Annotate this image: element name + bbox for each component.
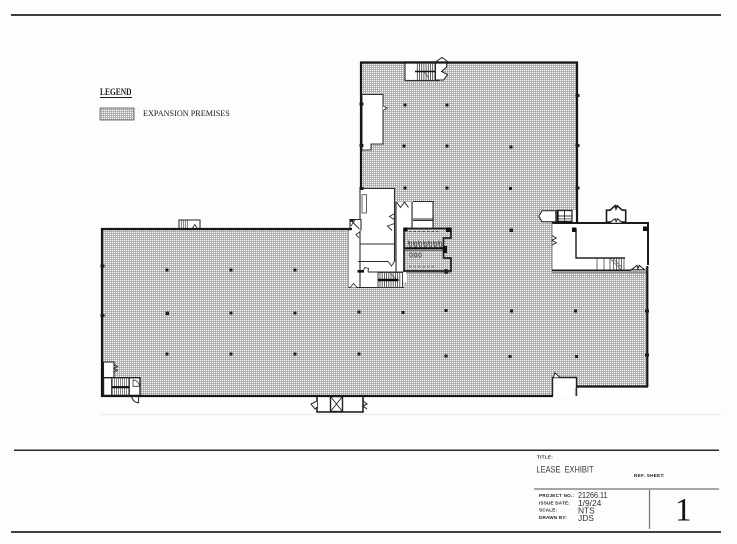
svg-text:DRAWN BY:: DRAWN BY:: [539, 515, 567, 520]
svg-text:SCALE:: SCALE:: [539, 507, 558, 512]
svg-text:ISSUE DATE:: ISSUE DATE:: [539, 500, 570, 505]
svg-text:PROJECT NO.:: PROJECT NO.:: [539, 493, 574, 498]
svg-text:EXPANSION PREMISES: EXPANSION PREMISES: [143, 109, 230, 118]
svg-text:REF. SHEET:: REF. SHEET:: [634, 473, 665, 478]
svg-text:LEGEND: LEGEND: [100, 87, 132, 97]
svg-text:1: 1: [675, 493, 692, 529]
svg-text:LEASE EXHIBIT: LEASE EXHIBIT: [537, 464, 594, 475]
svg-text:TITLE:: TITLE:: [537, 455, 553, 460]
svg-text:JDS: JDS: [578, 513, 594, 523]
